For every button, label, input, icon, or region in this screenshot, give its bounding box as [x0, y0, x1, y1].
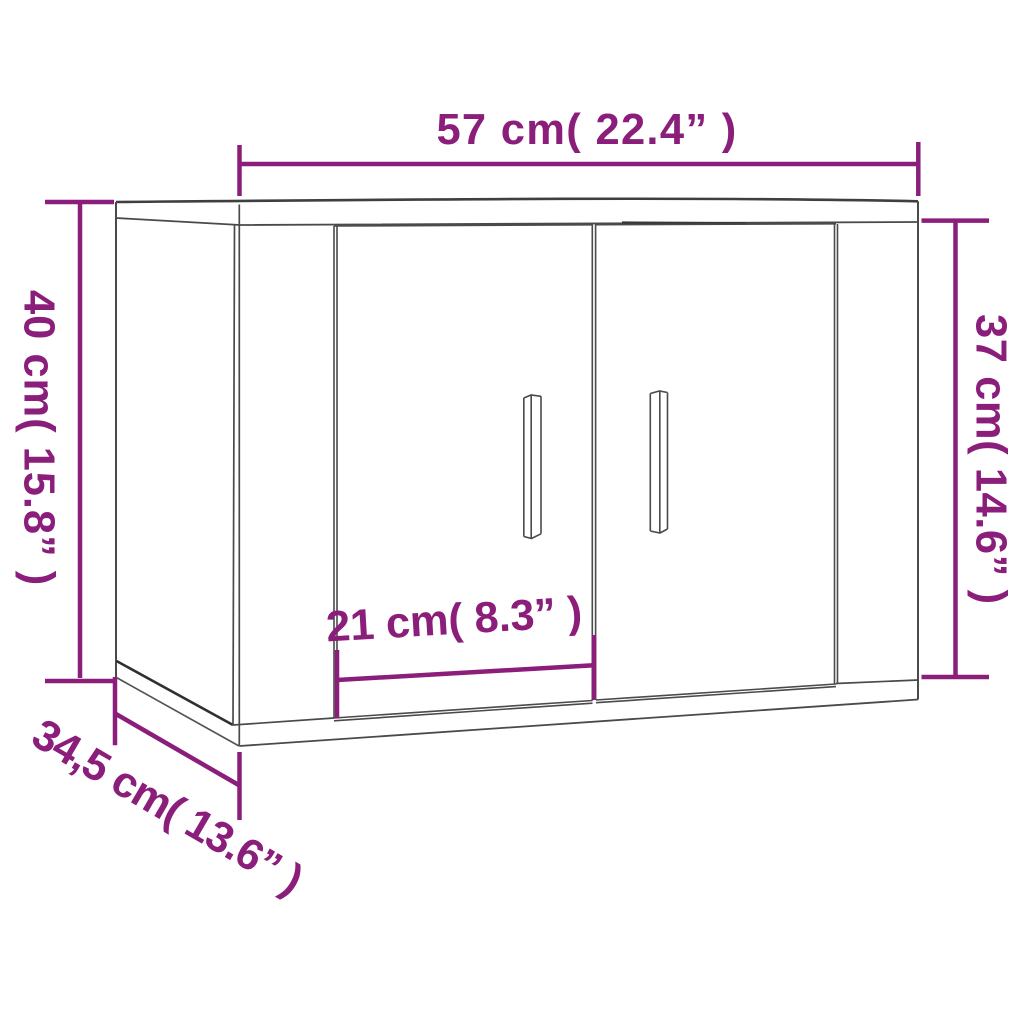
svg-text:37 cm( 14.6” ): 37 cm( 14.6” )	[967, 314, 1015, 605]
svg-text:40 cm( 15.8” ): 40 cm( 15.8” )	[15, 290, 63, 586]
svg-text:57 cm( 22.4” ): 57 cm( 22.4” )	[436, 106, 737, 154]
